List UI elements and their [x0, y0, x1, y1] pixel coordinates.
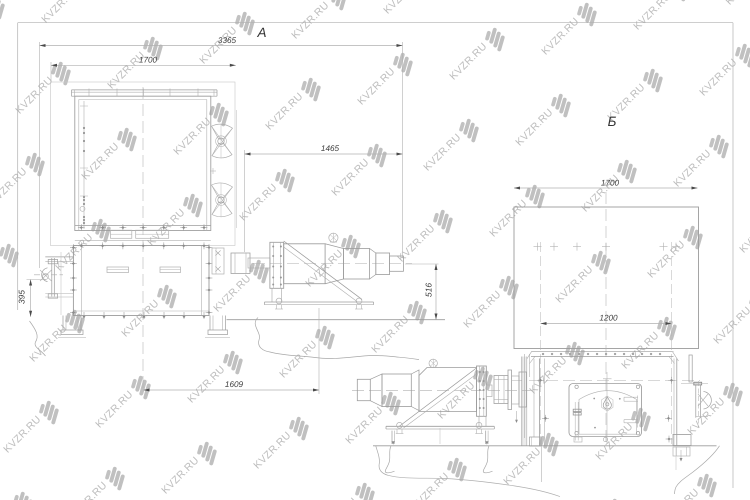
svg-text:1609: 1609 — [225, 380, 244, 389]
svg-text:3365: 3365 — [218, 36, 237, 45]
svg-text:1200: 1200 — [599, 314, 618, 323]
svg-text:1700: 1700 — [601, 179, 620, 188]
svg-text:Б: Б — [608, 114, 617, 129]
svg-text:395: 395 — [17, 290, 27, 304]
svg-text:516: 516 — [424, 283, 434, 297]
svg-text:1465: 1465 — [321, 144, 340, 153]
svg-text:1700: 1700 — [139, 56, 158, 65]
svg-text:А: А — [256, 25, 266, 40]
